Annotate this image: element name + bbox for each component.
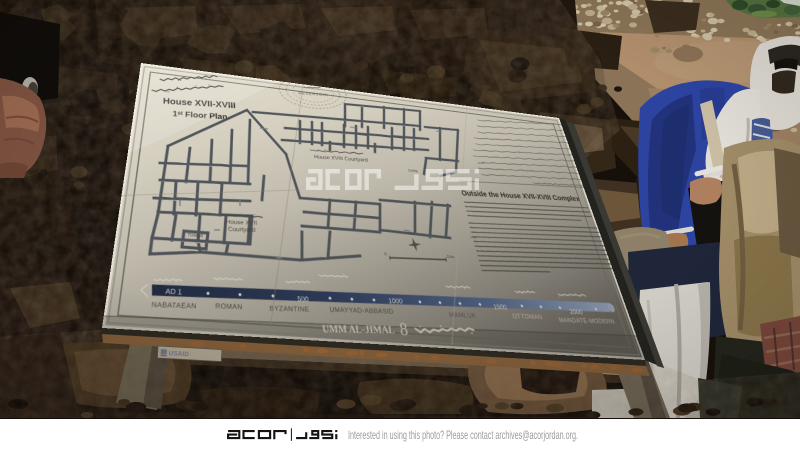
svg-text:Interested in using this photo: Interested in using this photo? Please c… bbox=[348, 428, 578, 442]
